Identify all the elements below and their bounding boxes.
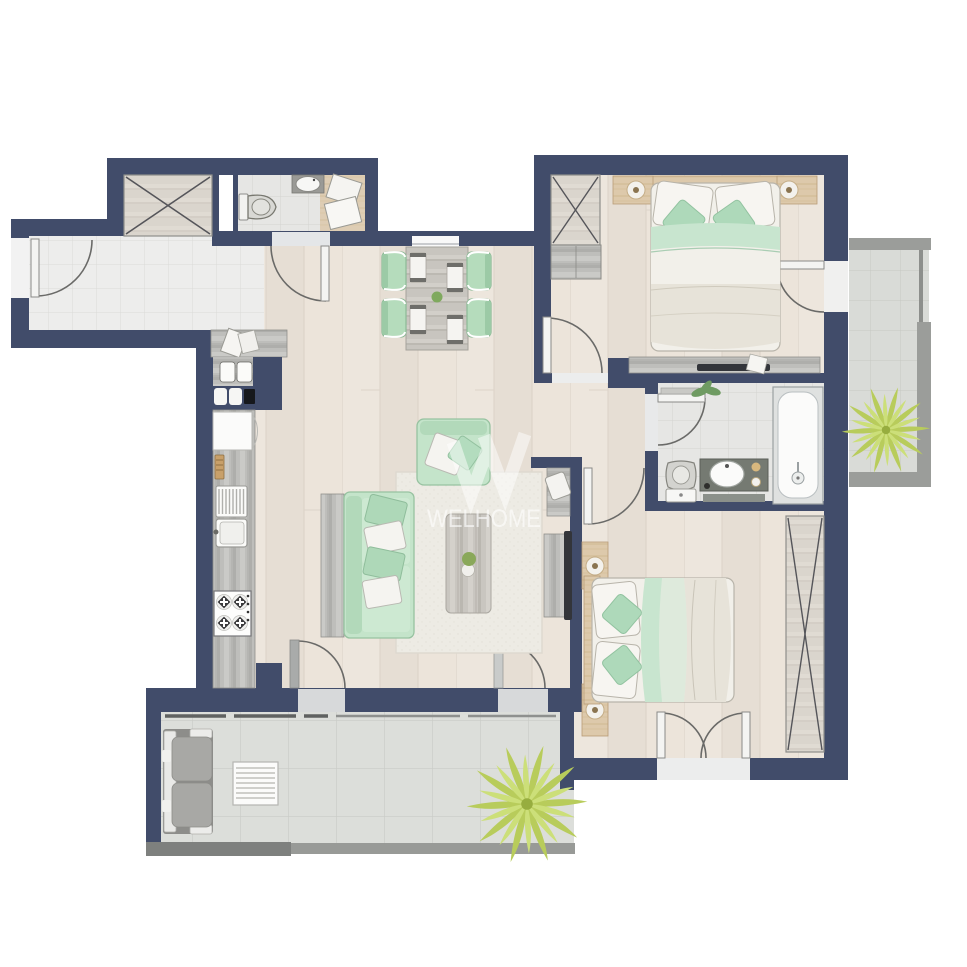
svg-text:WELHOME: WELHOME — [427, 505, 541, 533]
